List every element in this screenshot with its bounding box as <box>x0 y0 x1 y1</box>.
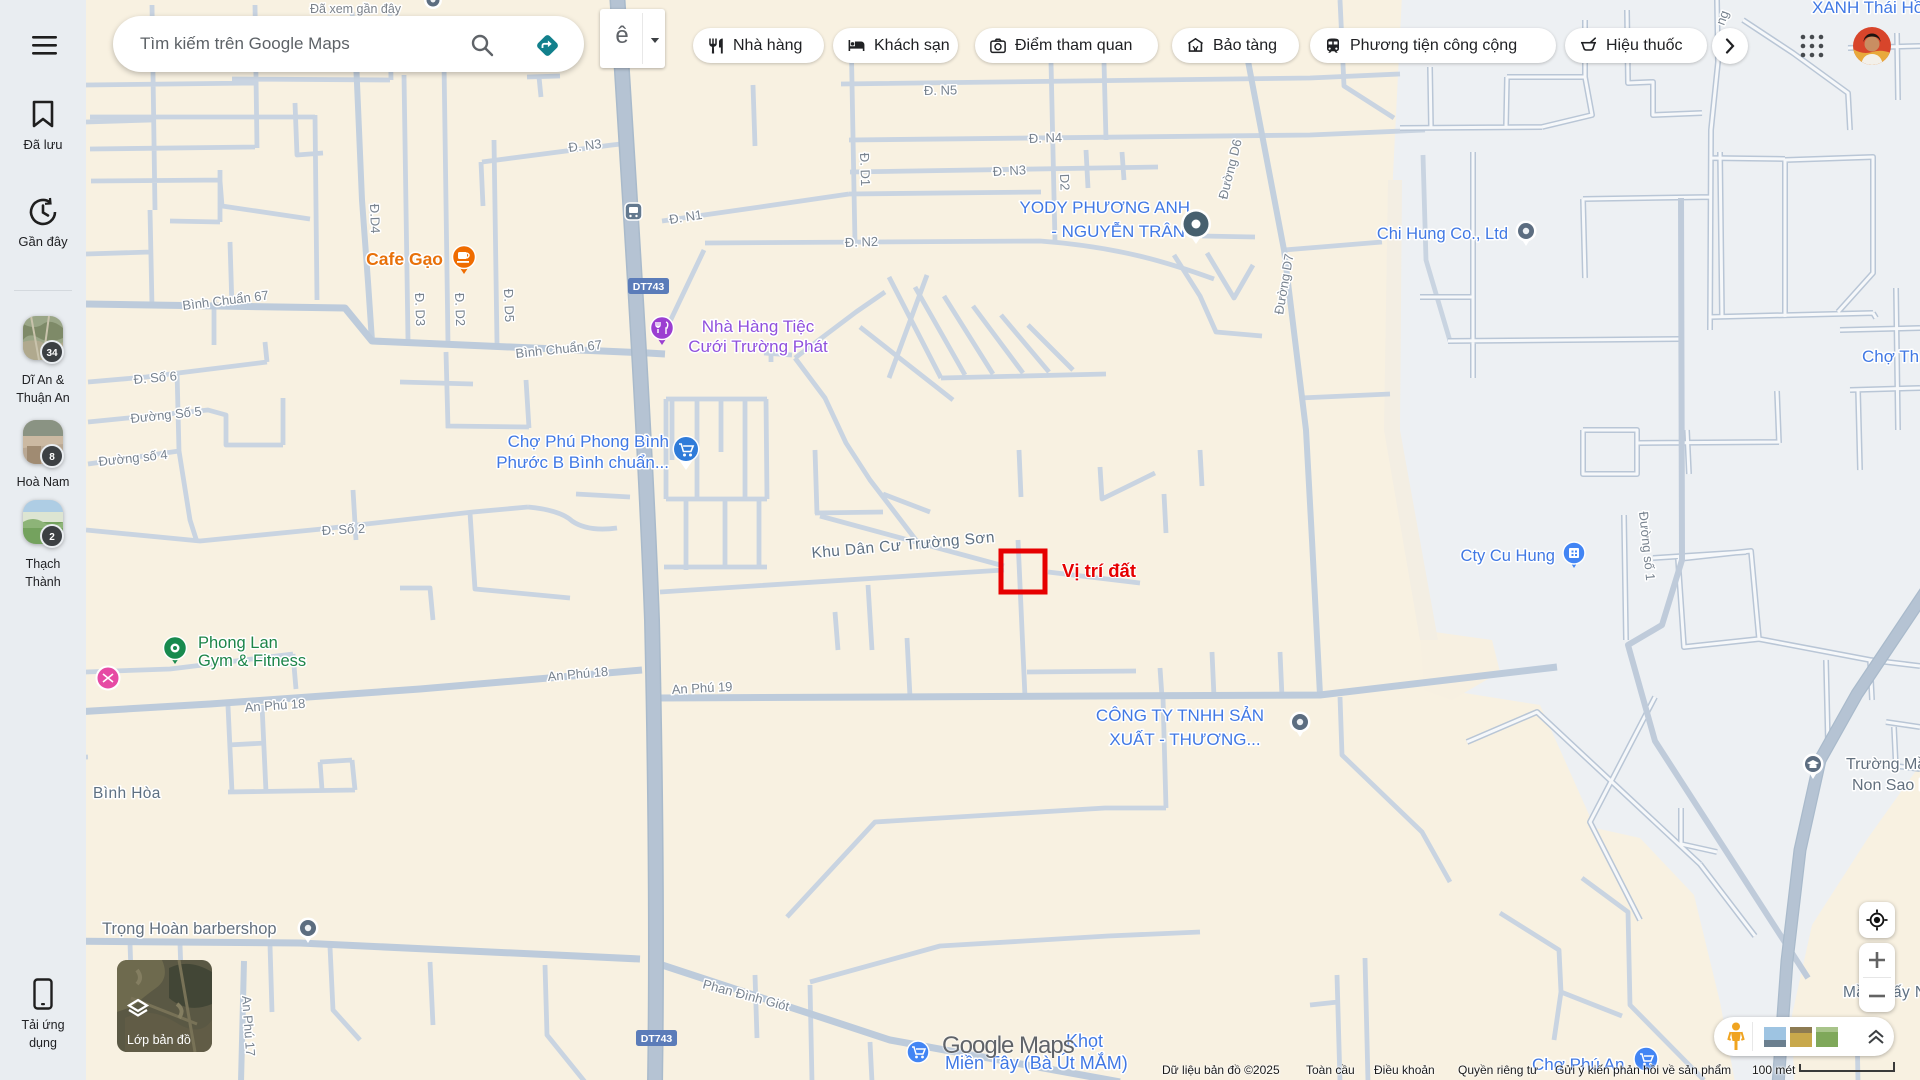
svg-text:Chợ Th: Chợ Th <box>1862 347 1919 366</box>
svg-text:YODY PHƯƠNG ANH: YODY PHƯƠNG ANH <box>1020 198 1190 217</box>
svg-text:Đã xem gần đây: Đã xem gần đây <box>310 2 402 16</box>
svg-text:Chợ Phú Phong Bình: Chợ Phú Phong Bình <box>508 432 669 451</box>
svg-text:Trọng Hoàn barbershop: Trọng Hoàn barbershop <box>102 920 277 938</box>
svg-text:Đ. N4: Đ. N4 <box>1029 130 1063 146</box>
svg-text:Bình Hòa: Bình Hòa <box>93 785 161 802</box>
svg-text:D2: D2 <box>1057 174 1073 191</box>
svg-text:34: 34 <box>46 348 58 359</box>
svg-text:2: 2 <box>49 532 55 543</box>
svg-text:Lớp bản đồ: Lớp bản đồ <box>127 1033 191 1047</box>
svg-text:Non Sao B: Non Sao B <box>1852 777 1920 794</box>
svg-text:DT743: DT743 <box>641 1033 673 1045</box>
svg-text:Đ. N5: Đ. N5 <box>924 82 957 98</box>
svg-text:- NGUYỄN TRÂN: - NGUYỄN TRÂN <box>1051 222 1185 241</box>
svg-text:Chi Hung Co., Ltd: Chi Hung Co., Ltd <box>1377 225 1508 243</box>
svg-text:Đ. Số 2: Đ. Số 2 <box>321 521 365 538</box>
svg-text:Cafe Gạo: Cafe Gạo <box>366 249 443 269</box>
svg-text:Đ.D4: Đ.D4 <box>367 204 383 234</box>
svg-text:ấy N: ấy N <box>1893 984 1920 1001</box>
svg-text:XUẤT - THƯƠNG...: XUẤT - THƯƠNG... <box>1109 730 1260 749</box>
svg-text:DT743: DT743 <box>633 281 665 293</box>
svg-text:Đ. N2: Đ. N2 <box>845 234 879 250</box>
svg-text:Đ. D3: Đ. D3 <box>412 293 428 327</box>
svg-text:Phước B Bình chuẩn...: Phước B Bình chuẩn... <box>496 453 669 472</box>
svg-text:Đ. N3: Đ. N3 <box>992 162 1026 179</box>
svg-text:8: 8 <box>49 452 55 463</box>
svg-text:Đ. D2: Đ. D2 <box>452 293 468 327</box>
svg-text:Trường Mầ: Trường Mầ <box>1846 756 1920 773</box>
svg-text:Đ. D1: Đ. D1 <box>857 153 873 187</box>
svg-text:An Phú 19: An Phú 19 <box>671 679 732 697</box>
svg-text:Gym & Fitness: Gym & Fitness <box>198 652 306 670</box>
svg-text:Đ. D5: Đ. D5 <box>501 289 517 323</box>
svg-text:Vị trí đất: Vị trí đất <box>1062 560 1136 581</box>
svg-text:Nhà Hàng Tiệc: Nhà Hàng Tiệc <box>702 317 815 336</box>
svg-text:XANH Thái Hồ: XANH Thái Hồ <box>1812 0 1920 17</box>
svg-text:Phong Lan: Phong Lan <box>198 634 278 652</box>
svg-text:Cty Cu Hung: Cty Cu Hung <box>1461 547 1555 565</box>
svg-text:CÔNG TY TNHH SẢN: CÔNG TY TNHH SẢN <box>1096 706 1264 725</box>
svg-text:Cưới Trường Phát: Cưới Trường Phát <box>688 337 828 356</box>
